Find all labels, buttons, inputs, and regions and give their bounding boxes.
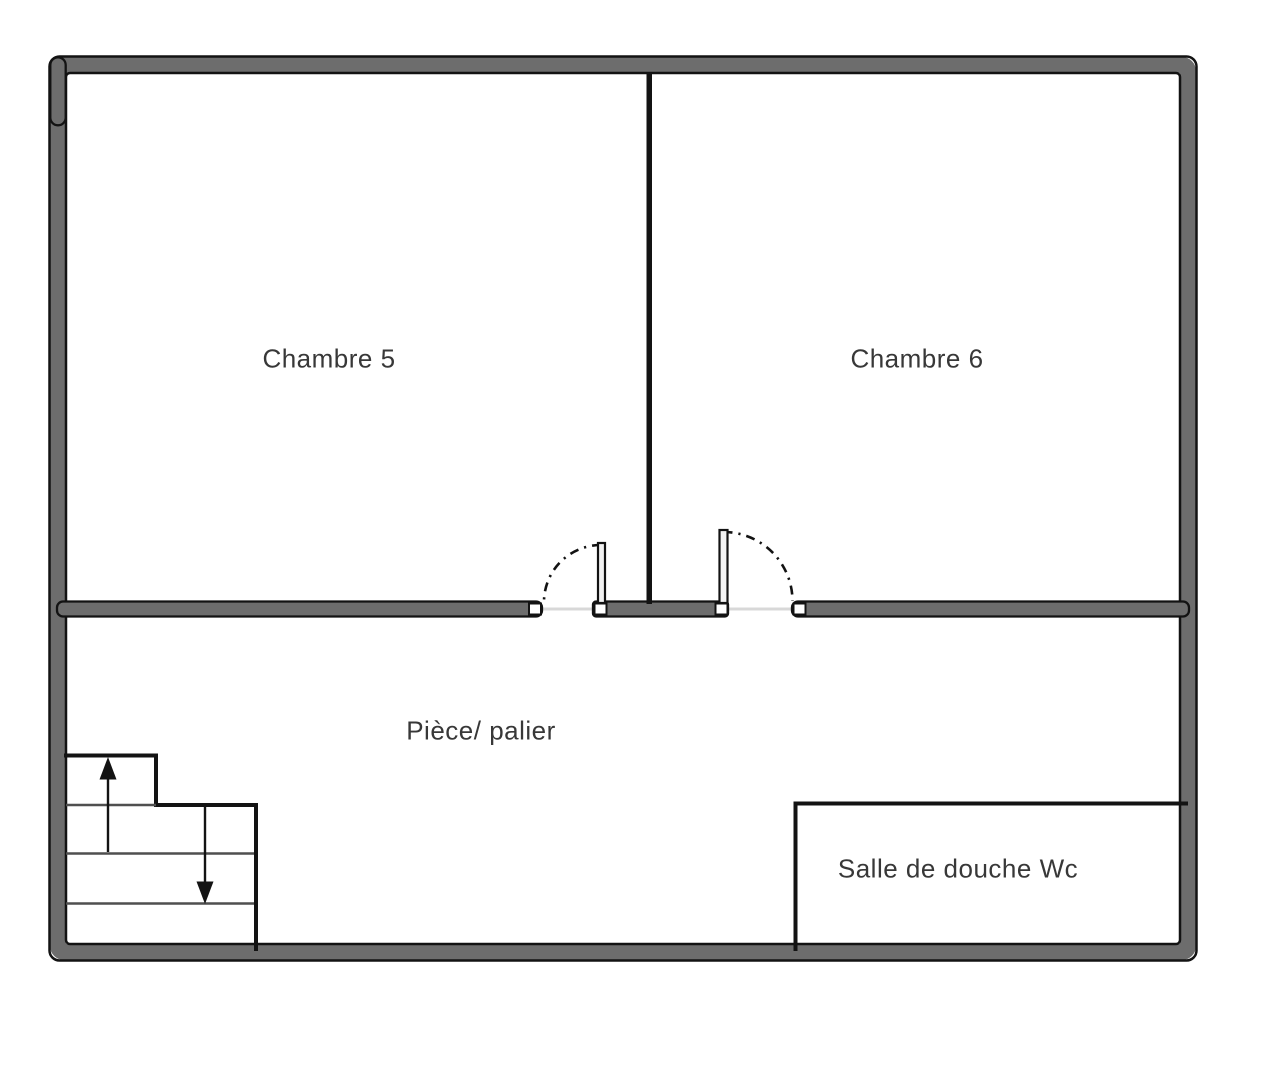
door-leaf: [598, 543, 605, 603]
interior-wall: [57, 602, 1189, 617]
door-jamb: [716, 604, 728, 615]
door-jamb: [529, 604, 541, 615]
arrow-head-up: [100, 757, 117, 780]
room-label-chambre5: Chambre 5: [262, 344, 395, 375]
wall-joint-capsule: [50, 57, 65, 125]
door-swing-arc: [724, 532, 793, 601]
room-label-salle-de-douche: Salle de douche Wc: [838, 854, 1078, 885]
floor-plan: Chambre 5 Chambre 6 Pièce/ palier Salle …: [0, 0, 1267, 1080]
door-chambre6: [720, 530, 793, 603]
door-jamb: [794, 604, 806, 615]
interior-wall-right-segment: [792, 602, 1189, 617]
outer-walls: [50, 57, 1197, 961]
room-label-chambre6: Chambre 6: [850, 344, 983, 375]
floor-plan-drawing: [0, 0, 1267, 1080]
door-leaf: [720, 530, 728, 603]
staircase: [64, 756, 256, 952]
outer-wall-outer-edge: [50, 57, 1197, 961]
stairs-down-arrow: [197, 807, 214, 904]
room-label-palier: Pièce/ palier: [406, 716, 556, 747]
door-jamb: [595, 604, 607, 615]
interior-wall-middle-segment: [593, 602, 728, 617]
door-chambre5: [544, 543, 605, 603]
interior-wall-left-segment: [57, 602, 542, 617]
arrow-head-down: [197, 882, 214, 905]
outer-wall-band: [58, 65, 1188, 952]
door-swing-arc: [544, 545, 601, 601]
bedroom-divider-wall: [647, 73, 653, 604]
outer-wall-inner-edge: [66, 73, 1180, 944]
